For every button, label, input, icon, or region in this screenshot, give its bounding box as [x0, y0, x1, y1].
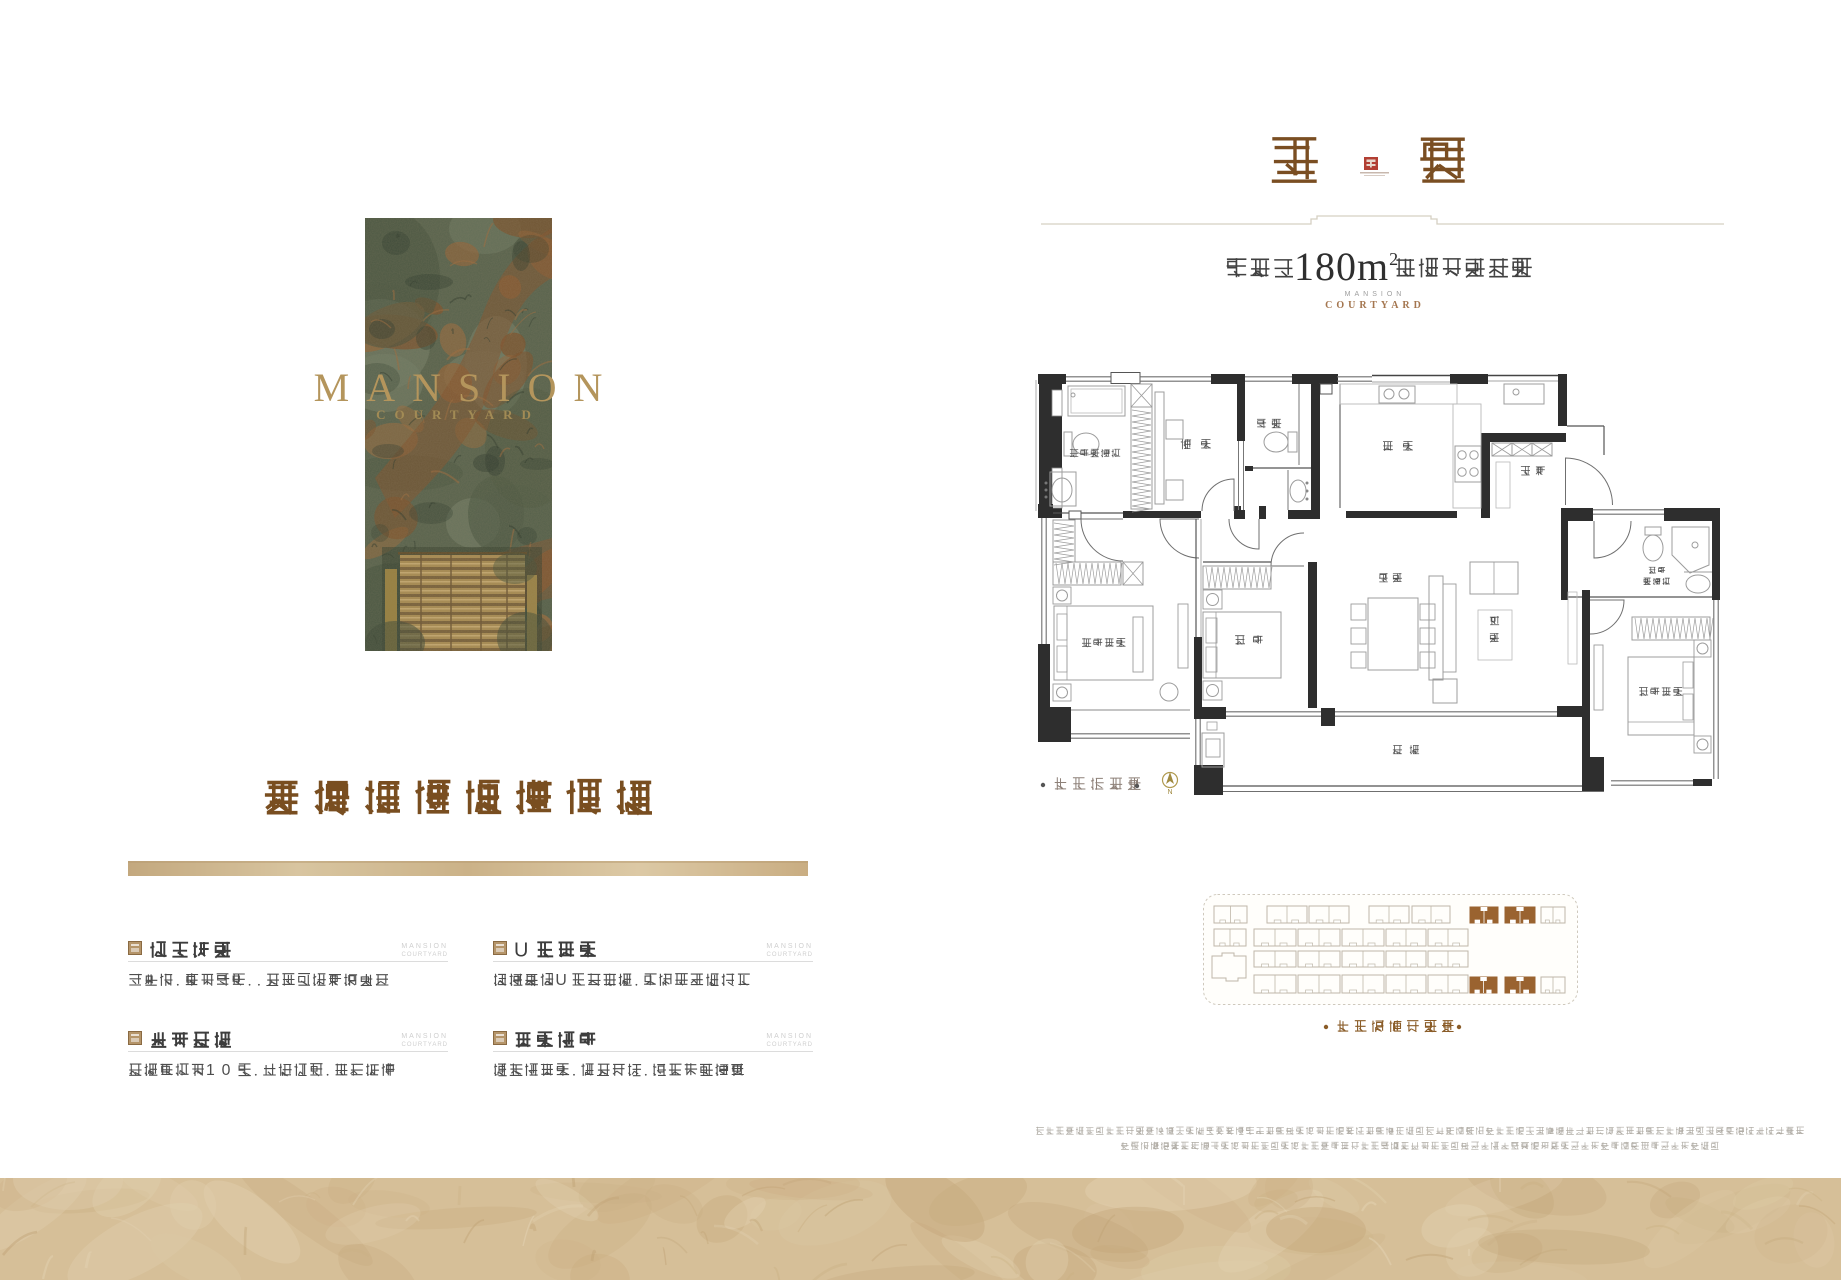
- svg-text:0: 0: [222, 1062, 231, 1079]
- svg-text:N: N: [1167, 789, 1172, 796]
- svg-text:U: U: [514, 940, 528, 962]
- svg-text:1: 1: [206, 1062, 215, 1079]
- svg-text:U: U: [555, 972, 566, 989]
